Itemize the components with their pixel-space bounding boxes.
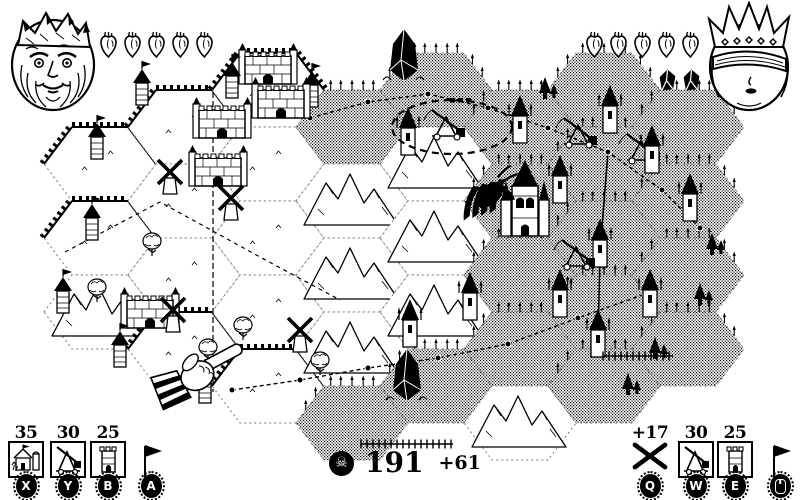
flag-icon <box>132 441 170 478</box>
skull-icon: ☠ <box>329 451 354 476</box>
trebuchet-cost: 30 <box>57 426 80 441</box>
tower-icon <box>90 441 126 478</box>
gem-icon <box>681 67 702 94</box>
tower-cost: 25 <box>97 426 120 441</box>
trebuchet-cost-right: 30 <box>685 426 708 441</box>
heart-icon <box>680 31 701 58</box>
key-button-w[interactable]: W <box>686 474 707 498</box>
score-display: ☠ 191 +61 <box>329 450 481 476</box>
heart-icon <box>98 31 119 58</box>
build-slot-trebuchet-right[interactable]: 30 W <box>678 426 714 498</box>
heart-icon <box>584 31 605 58</box>
mouse-left-click-button[interactable] <box>770 474 791 498</box>
rally-flag-slot-left[interactable]: A <box>134 426 168 498</box>
gamepad-button-b[interactable]: B <box>98 474 119 498</box>
game-screen: 35 X 30 Y 25 <box>0 0 800 500</box>
farm-icon <box>8 441 44 478</box>
key-button-e[interactable]: E <box>725 474 746 498</box>
king-health-hearts <box>98 31 215 58</box>
crossed-out-icon <box>631 441 669 478</box>
heart-icon <box>146 31 167 58</box>
heart-icon <box>608 31 629 58</box>
tower-feature <box>88 115 106 159</box>
flag-icon-right <box>761 441 799 478</box>
build-slot-farm[interactable]: 35 X <box>8 426 44 498</box>
score-delta: +61 <box>438 452 480 474</box>
build-slot-trebuchet[interactable]: 30 Y <box>50 426 86 498</box>
trebuchet-icon-right <box>678 441 714 478</box>
gem-icon <box>657 67 678 94</box>
farm-cost: 35 <box>15 426 38 441</box>
queen-health-hearts <box>584 31 701 58</box>
heart-icon <box>194 31 215 58</box>
gamepad-button-x[interactable]: X <box>16 474 37 498</box>
trebuchet-icon <box>50 441 86 478</box>
tower-feature <box>54 269 72 313</box>
king-portrait <box>6 1 98 115</box>
heart-icon <box>170 31 191 58</box>
tower-cost-right: 25 <box>724 426 747 441</box>
heart-icon <box>656 31 677 58</box>
score-value: 191 <box>365 450 423 476</box>
build-slot-disabled[interactable]: +17 Q <box>618 426 682 498</box>
mouse-icon <box>775 479 786 494</box>
tower-icon-right <box>717 441 753 478</box>
rally-flag-slot-right[interactable] <box>760 426 800 498</box>
heart-icon <box>632 31 653 58</box>
key-button-q[interactable]: Q <box>640 474 661 498</box>
gamepad-button-y[interactable]: Y <box>58 474 79 498</box>
build-slot-tower[interactable]: 25 B <box>90 426 126 498</box>
build-slot-tower-right[interactable]: 25 E <box>717 426 753 498</box>
gamepad-button-a[interactable]: A <box>141 474 162 498</box>
queen-gems <box>657 67 702 94</box>
heart-icon <box>122 31 143 58</box>
tower-feature <box>133 61 151 105</box>
queen-portrait <box>701 1 797 115</box>
